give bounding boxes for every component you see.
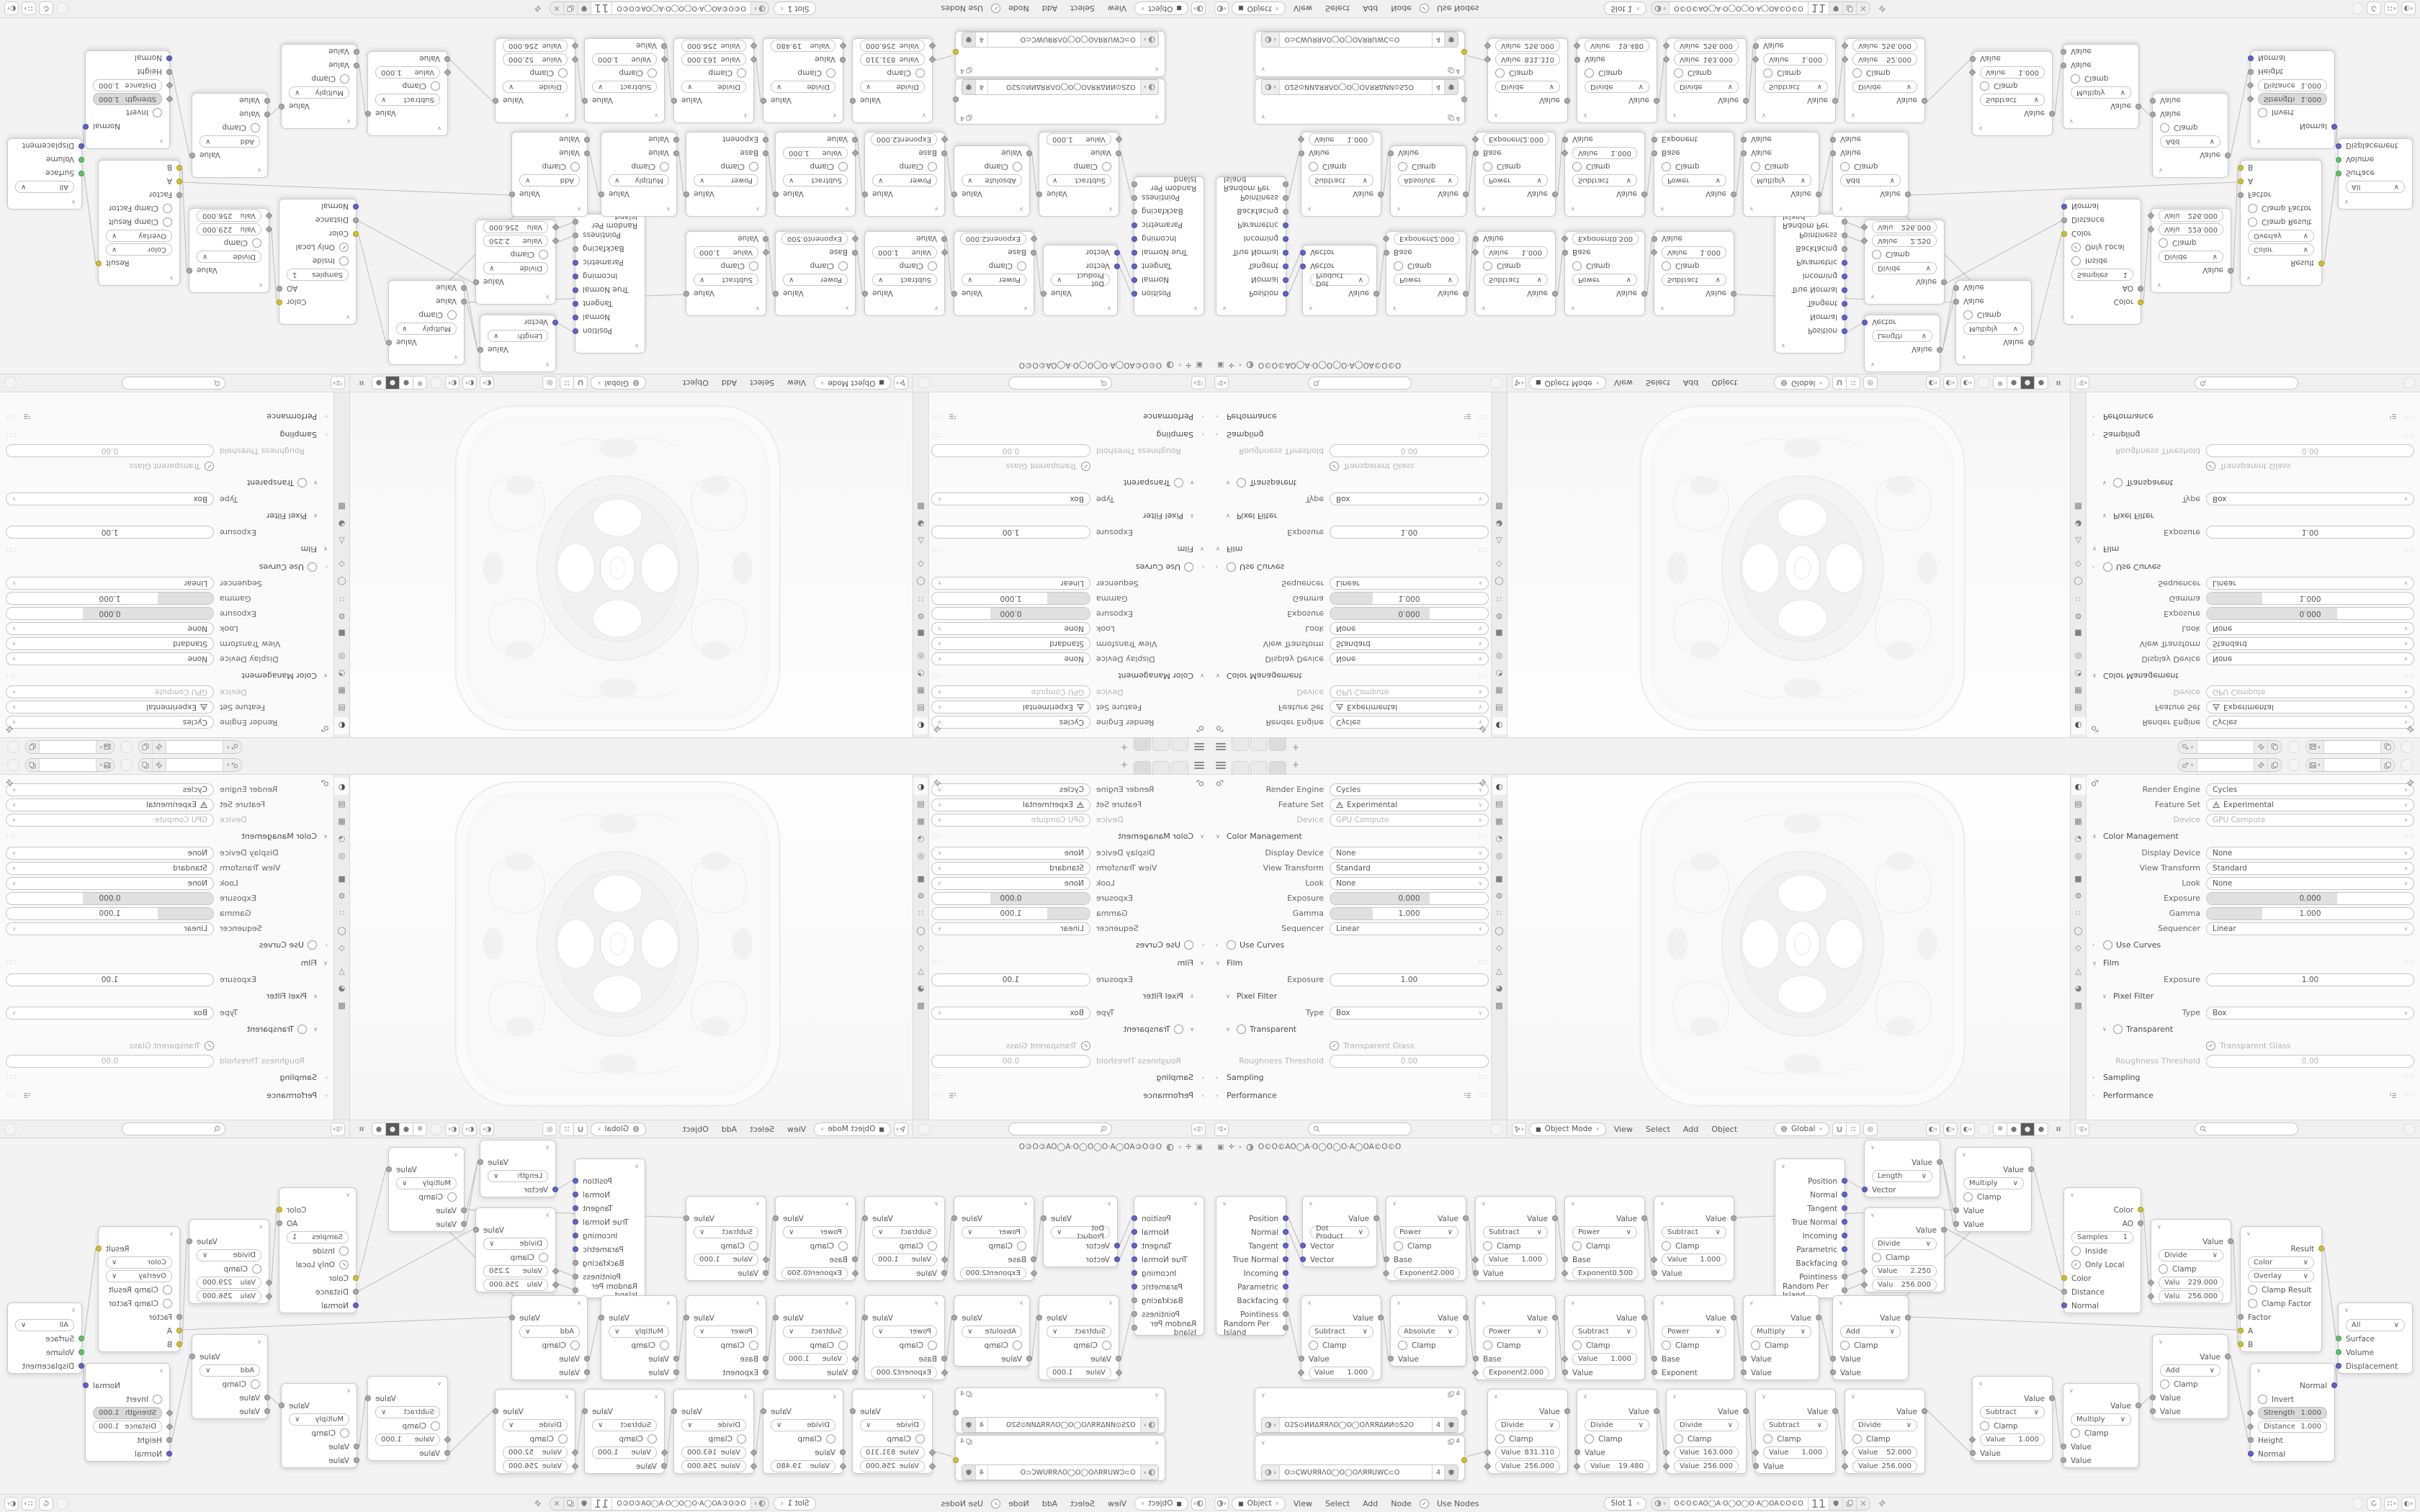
- section-sampling[interactable]: ›Sampling∷∷: [931, 426, 1204, 444]
- value-field[interactable]: Value1.000: [783, 147, 848, 159]
- input-socket[interactable]: [552, 320, 558, 325]
- slot-selector[interactable]: Slot 1∨: [1604, 2, 1646, 16]
- value-field[interactable]: Exponent2.000: [960, 1267, 1026, 1279]
- node-dropdown[interactable]: Subtract∨: [783, 1326, 848, 1338]
- output-socket[interactable]: [1283, 250, 1289, 256]
- checkbox-clamp[interactable]: [1751, 162, 1760, 171]
- node-math-subtract-1[interactable]: ∨ValueSubtract∨ClampValue1.000Value: [864, 1196, 945, 1281]
- value-field[interactable]: Value831.310: [860, 53, 925, 66]
- tab-modifiers[interactable]: ⚙: [335, 608, 349, 625]
- output-socket[interactable]: [1641, 1315, 1647, 1320]
- dropdown-box[interactable]: Box∨: [931, 493, 1090, 506]
- output-socket[interactable]: [1283, 1215, 1289, 1221]
- node-mix-color[interactable]: ∨ResultColor∨Overlay∨Clamp ResultClamp F…: [98, 1226, 180, 1352]
- node-header[interactable]: ∨: [776, 300, 855, 315]
- collapse-icon[interactable]: ∨: [1660, 305, 1664, 312]
- value-field[interactable]: Samples1: [2071, 269, 2133, 281]
- output-socket[interactable]: [1041, 291, 1047, 297]
- collapse-icon[interactable]: ∨: [2344, 1307, 2349, 1313]
- value-field[interactable]: Value163.000: [681, 53, 746, 66]
- material-users-count[interactable]: 11: [1808, 3, 1829, 15]
- tab-constraints[interactable]: ◇: [335, 939, 349, 956]
- node-geometry-1[interactable]: ∨PositionNormalTangentTrue NormalIncomin…: [1134, 176, 1204, 316]
- dropdown-none[interactable]: None∨: [1330, 877, 1489, 890]
- collapse-icon[interactable]: ∨: [1660, 1300, 1664, 1306]
- node-dropdown[interactable]: Multiply∨: [396, 1177, 457, 1189]
- output-socket[interactable]: [1283, 1325, 1289, 1331]
- node-dropdown[interactable]: Subtract∨: [1309, 1326, 1373, 1338]
- output-socket[interactable]: [1283, 195, 1289, 201]
- input-socket[interactable]: [1970, 56, 1976, 62]
- output-socket[interactable]: [1283, 1256, 1289, 1262]
- viewport-gizmo-button[interactable]: ◐∨: [480, 1122, 494, 1136]
- number-field-exposure[interactable]: 1.00: [2206, 526, 2414, 539]
- collapse-icon[interactable]: ∨: [2157, 1223, 2161, 1230]
- node-math-dot-product[interactable]: ∨ValueDot Product∨VectorVector: [1302, 245, 1377, 316]
- tab-material[interactable]: ◕: [2071, 979, 2086, 996]
- input-socket[interactable]: [2061, 1275, 2067, 1281]
- tab-material[interactable]: ◕: [335, 516, 349, 533]
- checkbox-transparent-glass[interactable]: [205, 1041, 214, 1050]
- viewport-xray-button[interactable]: ◐∨: [1960, 377, 1975, 390]
- node-dropdown[interactable]: Subtract∨: [1572, 1326, 1637, 1338]
- output-socket[interactable]: [1937, 347, 1942, 353]
- collapse-icon[interactable]: ∨: [257, 167, 261, 174]
- node-header[interactable]: ∨: [853, 1390, 932, 1405]
- output-socket[interactable]: [573, 274, 578, 279]
- node-header[interactable]: ∨: [1667, 1390, 1746, 1405]
- app-menu-icon[interactable]: [1216, 744, 1226, 751]
- node-math-absolute[interactable]: ∨ValueAbsolute∨ClampValue: [954, 1295, 1030, 1367]
- output-socket[interactable]: [1131, 1256, 1137, 1262]
- input-socket[interactable]: [1830, 150, 1836, 156]
- output-socket[interactable]: [1922, 98, 1927, 104]
- section-use-curves[interactable]: ›Use Curves: [1216, 936, 1489, 954]
- value-field[interactable]: Value1.000: [1980, 66, 2045, 78]
- collapse-icon[interactable]: ∨: [934, 1200, 938, 1207]
- node-math-power-1[interactable]: ∨ValuePower∨ClampBaseExponent2.000: [954, 231, 1034, 316]
- orientation-selector[interactable]: Global∨: [591, 1122, 646, 1136]
- checkbox-clamp[interactable]: [928, 1341, 937, 1350]
- node-math-divide-52[interactable]: ∨ValueDivide∨ClampValue52.000Value256.00…: [495, 1389, 575, 1474]
- dropdown-gpu-compute[interactable]: GPU Compute∨: [1330, 814, 1489, 827]
- dropdown-cycles[interactable]: Cycles∨: [6, 716, 214, 729]
- node-dropdown[interactable]: Divide∨: [1872, 1238, 1937, 1250]
- value-field[interactable]: Value163.000: [1674, 1446, 1739, 1459]
- section-sampling[interactable]: ›Sampling∷∷: [2092, 1068, 2414, 1086]
- node-dropdown[interactable]: Power∨: [962, 1226, 1026, 1238]
- input-socket[interactable]: [1116, 1356, 1121, 1362]
- tab-scene[interactable]: ◔: [2071, 829, 2086, 847]
- node-header[interactable]: ∨: [1865, 1140, 1940, 1156]
- use-nodes-checkbox[interactable]: [991, 1499, 1000, 1508]
- input-socket[interactable]: [852, 1369, 858, 1375]
- node-editor-canvas[interactable]: ∨PositionNormalTangentTrue NormalIncomin…: [1210, 1138, 2420, 1494]
- node-ambient-occlusion[interactable]: ∨ColorAOSamples1InsideOnly LocalColorDis…: [279, 199, 357, 325]
- input-socket[interactable]: [2248, 1437, 2254, 1443]
- input-socket[interactable]: [1026, 1356, 1032, 1362]
- collapse-icon[interactable]: ∨: [1155, 1439, 1159, 1446]
- node-header[interactable]: ∨: [585, 107, 664, 122]
- section-sampling[interactable]: ›Sampling∷∷: [1216, 426, 1489, 444]
- tab-physics[interactable]: ◯: [914, 573, 928, 590]
- viewport-overlay-button[interactable]: ◐∨: [462, 377, 477, 390]
- node-math-power-2[interactable]: ∨ValuePower∨ClampBaseExponent0.500: [775, 1196, 856, 1281]
- collapse-icon[interactable]: ∨: [934, 1300, 938, 1306]
- node-header[interactable]: ∨: [8, 194, 81, 209]
- dropdown-box[interactable]: Box∨: [2206, 1007, 2414, 1020]
- properties-search-input[interactable]: [1308, 377, 1412, 390]
- node-math-power-3[interactable]: ∨ValuePower∨ClampBaseExponent2.000: [864, 132, 945, 217]
- node-math-divide-2250[interactable]: ∨ValueDivide∨ClampValue2.250Valu256.000: [475, 1207, 556, 1292]
- node-menu-view[interactable]: View: [1289, 1499, 1317, 1508]
- datablock-field[interactable]: ∨O⊃CWUЯЯΛO◯O◯OΛЯЯUWC⊂O4: [1261, 32, 1458, 48]
- section-toggle[interactable]: [297, 478, 307, 487]
- pause-button[interactable]: [354, 1122, 369, 1136]
- output-socket[interactable]: [1816, 192, 1821, 197]
- input-socket[interactable]: [1741, 137, 1747, 143]
- collapse-icon[interactable]: ∨: [833, 112, 837, 119]
- fake-user-button[interactable]: [962, 32, 976, 47]
- input-socket[interactable]: [941, 1356, 947, 1362]
- node-image-datablock-2[interactable]: ∨4∨O⊃CWUЯЯΛO◯O◯OΛЯЯUWC⊂O4: [955, 1435, 1165, 1481]
- tab-constraints[interactable]: ◇: [335, 556, 349, 573]
- tab-output[interactable]: ▤: [335, 795, 349, 812]
- node-header[interactable]: ∨: [1667, 107, 1746, 122]
- tab-output[interactable]: ▤: [335, 700, 349, 717]
- section-film[interactable]: ∨Film∷∷: [1216, 954, 1489, 972]
- collapse-icon[interactable]: ∨: [1749, 1300, 1754, 1306]
- collapse-icon[interactable]: ∨: [454, 354, 458, 361]
- slider-gamma[interactable]: 1.000: [2206, 907, 2414, 920]
- node-header[interactable]: ∨: [282, 1384, 357, 1399]
- collapse-icon[interactable]: ∨: [1962, 354, 1966, 361]
- workspace-tab-1[interactable]: [1232, 761, 1249, 774]
- node-ambient-occlusion[interactable]: ∨ColorAOSamples1InsideOnly LocalColorDis…: [2063, 1187, 2141, 1313]
- input-socket[interactable]: [166, 55, 172, 61]
- node-header[interactable]: ∨: [674, 1390, 753, 1405]
- node-dropdown[interactable]: Subtract∨: [1572, 174, 1637, 186]
- view-layer-new-button[interactable]: [26, 759, 40, 771]
- section-toggle[interactable]: [2103, 562, 2112, 572]
- checkbox-clamp[interactable]: [1394, 261, 1403, 271]
- section-transparent[interactable]: ∨Transparent: [2092, 474, 2414, 492]
- tab-scene[interactable]: ◔: [1492, 665, 1507, 683]
- tab-output[interactable]: ▤: [2071, 700, 2086, 717]
- input-socket[interactable]: [461, 285, 467, 291]
- output-socket[interactable]: [96, 261, 102, 266]
- slider-exposure[interactable]: 0.000: [1330, 892, 1489, 905]
- tab-object-data[interactable]: △: [335, 962, 349, 979]
- checkbox-clamp[interactable]: [826, 68, 835, 78]
- dropdown-linear[interactable]: Linear∨: [2206, 577, 2414, 590]
- node-math-multiply-2[interactable]: ∨ValueMultiply∨ClampValueValue: [601, 132, 677, 217]
- dropdown-none[interactable]: None∨: [1330, 623, 1489, 636]
- tab-particles[interactable]: ∷: [1492, 590, 1507, 608]
- material-pin-button[interactable]: [531, 1497, 545, 1511]
- node-header[interactable]: ∨: [1577, 107, 1657, 122]
- section-transparent[interactable]: ∨Transparent: [1216, 474, 1489, 492]
- value-field[interactable]: Value1.000: [592, 53, 657, 66]
- output-socket[interactable]: [1131, 209, 1137, 215]
- workspace-tab-2[interactable]: [1152, 738, 1170, 751]
- value-field[interactable]: Valu256.000: [483, 221, 548, 233]
- view-layer-new-button[interactable]: [26, 741, 40, 753]
- output-socket[interactable]: [277, 1207, 282, 1212]
- node-menu-select[interactable]: Select: [1065, 1499, 1100, 1508]
- properties-nav-button[interactable]: [2403, 1123, 2416, 1135]
- checkbox-clamp[interactable]: [1840, 162, 1850, 171]
- dropdown-standard[interactable]: Standard∨: [931, 862, 1090, 875]
- node-math-divide-52[interactable]: ∨ValueDivide∨ClampValue52.000Value256.00…: [1845, 1389, 1925, 1474]
- node-refresh-button[interactable]: [2367, 1497, 2381, 1511]
- viewport-menu-view[interactable]: View: [1609, 1125, 1638, 1134]
- input-socket[interactable]: [353, 204, 359, 210]
- node-math-absolute[interactable]: ∨ValueAbsolute∨ClampValue: [1390, 1295, 1466, 1367]
- node-dropdown[interactable]: Length∨: [1872, 330, 1932, 342]
- value-field[interactable]: Value19.480: [1585, 40, 1649, 52]
- tab-modifiers[interactable]: ⚙: [914, 608, 928, 625]
- collapse-icon[interactable]: ∨: [1839, 1300, 1843, 1306]
- input-socket[interactable]: [1753, 43, 1759, 49]
- add-workspace-button[interactable]: +: [1290, 742, 1301, 753]
- value-field[interactable]: Value1.000: [1483, 1254, 1548, 1266]
- checkbox-clamp[interactable]: [1572, 261, 1582, 271]
- collapse-icon[interactable]: ∨: [259, 282, 263, 289]
- collapse-icon[interactable]: ∨: [1571, 305, 1575, 312]
- slider-exposure[interactable]: 0.000: [2206, 892, 2414, 905]
- viewport-gizmo-button[interactable]: ◐∨: [1926, 377, 1940, 390]
- node-header[interactable]: ∨: [686, 1296, 766, 1311]
- node-image-datablock-1[interactable]: ∨4∨O2S⊙ИͶΔЯЯΛO◯O◯OΛЯЯΔͶИ⊙S2O4: [1255, 78, 1465, 125]
- input-socket[interactable]: [1562, 137, 1568, 143]
- node-dropdown[interactable]: Divide∨: [503, 81, 568, 93]
- value-field[interactable]: Valu256.000: [2159, 210, 2223, 222]
- node-snap-button[interactable]: ∨: [22, 2, 36, 16]
- slider-gamma[interactable]: 1.000: [2206, 593, 2414, 606]
- input-socket[interactable]: [1862, 1187, 1868, 1192]
- workspace-tab-3[interactable]: [1134, 738, 1151, 751]
- tab-object[interactable]: ■: [914, 625, 928, 642]
- dropdown-experimental[interactable]: Experimental∨: [6, 798, 214, 811]
- node-math-subtract-1[interactable]: ∨ValueSubtract∨ClampValue1.000Value: [864, 231, 945, 316]
- input-socket[interactable]: [353, 1275, 359, 1281]
- section-sampling[interactable]: ›Sampling∷∷: [2092, 426, 2414, 444]
- value-field[interactable]: Valu229.000: [2159, 223, 2223, 235]
- number-field-exposure[interactable]: 1.00: [931, 526, 1090, 539]
- value-field[interactable]: Value1.000: [1572, 1353, 1637, 1365]
- tab-object[interactable]: ■: [1492, 625, 1507, 642]
- checkbox-clamp[interactable]: [1102, 1341, 1111, 1350]
- output-socket[interactable]: [1731, 192, 1736, 197]
- node-dropdown[interactable]: Divide∨: [860, 81, 925, 93]
- node-material-output[interactable]: ∨All∨SurfaceVolumeDisplacement: [7, 1302, 82, 1374]
- node-bump[interactable]: ∨NormalInvertStrength1.000Distance1.000H…: [85, 50, 170, 149]
- section-pixel-filter[interactable]: ∨Pixel Filter: [6, 987, 328, 1005]
- number-field-exposure[interactable]: 1.00: [1330, 526, 1489, 539]
- dropdown-none[interactable]: None∨: [931, 877, 1090, 890]
- output-socket[interactable]: [1463, 1315, 1469, 1320]
- section-toggle[interactable]: [1237, 1025, 1246, 1034]
- input-socket[interactable]: [941, 1270, 947, 1276]
- input-socket[interactable]: [79, 1363, 84, 1369]
- tab-physics[interactable]: ◯: [335, 573, 349, 590]
- input-socket[interactable]: [2150, 98, 2156, 104]
- dropdown-cycles[interactable]: Cycles∨: [931, 783, 1090, 796]
- section-use-curves[interactable]: ›Use Curves: [6, 936, 328, 954]
- output-socket[interactable]: [1564, 98, 1570, 104]
- checkbox-clamp[interactable]: [737, 1434, 746, 1444]
- node-math-add-1[interactable]: ∨ValueAdd∨ClampValueValue: [511, 132, 588, 217]
- number-field-roughness-threshold[interactable]: 0.00: [1330, 445, 1489, 458]
- output-socket[interactable]: [1283, 236, 1289, 242]
- value-field[interactable]: Value1.000: [872, 1254, 937, 1266]
- output-socket[interactable]: [1654, 1408, 1659, 1414]
- node-header[interactable]: ∨: [2153, 162, 2228, 177]
- section-use-curves[interactable]: ›Use Curves: [2092, 558, 2414, 576]
- checkbox-clamp[interactable]: [251, 123, 260, 132]
- viewport-editor-type-button[interactable]: ∨: [1512, 377, 1526, 390]
- tab-view-layer[interactable]: ▦: [335, 683, 349, 700]
- input-socket[interactable]: [264, 98, 270, 104]
- node-header[interactable]: ∨: [1488, 107, 1567, 122]
- tab-particles[interactable]: ∷: [335, 590, 349, 608]
- node-header[interactable]: ∨: [1744, 201, 1819, 216]
- node-math-dot-product[interactable]: ∨ValueDot Product∨VectorVector: [1043, 245, 1118, 316]
- node-math-subtract-5[interactable]: ∨ValueSubtract∨ClampValue1.000Value: [1755, 38, 1836, 123]
- output-socket[interactable]: [850, 1408, 856, 1414]
- section-transparent[interactable]: ∨Transparent: [931, 1020, 1204, 1038]
- viewport-overlay-button[interactable]: ◐∨: [1943, 1122, 1958, 1136]
- node-dropdown[interactable]: Subtract∨: [1483, 274, 1548, 286]
- node-header[interactable]: ∨: [1956, 1148, 2031, 1163]
- node-header[interactable]: ∨: [476, 1208, 555, 1223]
- input-socket[interactable]: [353, 231, 359, 237]
- tab-physics[interactable]: ◯: [2071, 922, 2086, 939]
- value-field[interactable]: Value256.000: [860, 1460, 925, 1472]
- input-socket[interactable]: [79, 143, 84, 149]
- material-unlink-button[interactable]: [1856, 1498, 1870, 1510]
- node-dropdown[interactable]: Divide∨: [1852, 1419, 1917, 1431]
- checkbox-transparent-glass[interactable]: [1081, 462, 1090, 471]
- node-header[interactable]: ∨: [865, 1296, 944, 1311]
- collapse-icon[interactable]: ∨: [934, 206, 938, 212]
- node-menu-add[interactable]: Add: [1037, 4, 1062, 14]
- collapse-icon[interactable]: ∨: [565, 1393, 569, 1400]
- input-socket[interactable]: [2238, 1314, 2244, 1320]
- node-header[interactable]: ∨: [1845, 1390, 1924, 1405]
- section-sampling[interactable]: ›Sampling∷∷: [931, 1068, 1204, 1086]
- material-datablock[interactable]: ∨O©O©AO◯A·O◯O◯O·A◯OA©O©O11: [550, 1497, 769, 1511]
- collapse-icon[interactable]: ∨: [635, 1163, 639, 1169]
- tab-modifiers[interactable]: ⚙: [2071, 887, 2086, 904]
- view-layer-name-input[interactable]: [2324, 741, 2380, 753]
- input-socket[interactable]: [176, 179, 182, 184]
- value-field[interactable]: Value19.480: [771, 40, 835, 52]
- section-use-curves[interactable]: ›Use Curves: [6, 558, 328, 576]
- properties-search-input[interactable]: [122, 377, 225, 390]
- viewport-editor-type-button[interactable]: ∨: [1512, 1122, 1526, 1136]
- scene-pin-button[interactable]: [153, 759, 166, 771]
- value-field[interactable]: Valu229.000: [2159, 1277, 2223, 1289]
- node-header[interactable]: ∨: [954, 1197, 1034, 1212]
- node-header[interactable]: ∨: [1654, 1197, 1734, 1212]
- tab-world[interactable]: ◎: [914, 648, 928, 665]
- node-math-divide-229[interactable]: ∨ValueDivide∨ClampValu229.000Valu256.000: [2151, 1219, 2231, 1304]
- collapse-icon[interactable]: ∨: [169, 1230, 174, 1237]
- tab-view-layer[interactable]: ▦: [914, 683, 928, 700]
- node-ghost-button[interactable]: [2352, 3, 2364, 15]
- scene-selector[interactable]: ∨: [2178, 758, 2281, 772]
- checkbox-clamp[interactable]: [928, 261, 937, 271]
- checkbox-clamp[interactable]: [1963, 310, 1973, 320]
- checkbox-clamp[interactable]: [1017, 1241, 1026, 1251]
- collapse-icon[interactable]: ∨: [1482, 206, 1486, 212]
- output-socket[interactable]: [1373, 291, 1379, 297]
- checkbox-only-local[interactable]: [339, 243, 349, 252]
- output-socket[interactable]: [1842, 315, 1847, 320]
- collapse-icon[interactable]: ∨: [1155, 66, 1159, 73]
- tab-world[interactable]: ◎: [2071, 847, 2086, 864]
- input-socket[interactable]: [176, 1314, 182, 1320]
- tab-render[interactable]: ◐: [2071, 717, 2086, 734]
- checkbox-clamp[interactable]: [1013, 1341, 1022, 1350]
- node-header[interactable]: ∨: [763, 1390, 843, 1405]
- checkbox-clamp[interactable]: [915, 1434, 925, 1444]
- section-color-management[interactable]: ∨Color Management∷∷: [1216, 667, 1489, 685]
- shading-material-button[interactable]: ●: [2021, 377, 2035, 390]
- viewport-menu-add[interactable]: Add: [717, 379, 742, 388]
- value-field[interactable]: Value1.000: [592, 1446, 657, 1459]
- fake-user-button[interactable]: [1444, 32, 1458, 47]
- output-socket[interactable]: [1552, 291, 1558, 297]
- checkbox-invert[interactable]: [153, 1395, 162, 1404]
- material-datablock[interactable]: ∨O©O©AO◯A·O◯O◯O·A◯OA©O©O11: [1651, 1497, 1870, 1511]
- node-dropdown[interactable]: Color∨: [2248, 243, 2314, 256]
- material-users-count[interactable]: 11: [591, 1498, 612, 1510]
- node-dropdown[interactable]: Divide∨: [681, 1419, 746, 1431]
- value-field[interactable]: Valu229.000: [197, 1277, 261, 1289]
- node-dropdown[interactable]: Subtract∨: [592, 1419, 657, 1431]
- collapse-icon[interactable]: ∨: [1261, 1439, 1265, 1446]
- section-pixel-filter[interactable]: ∨Pixel Filter: [1216, 987, 1489, 1005]
- checkbox-clamp[interactable]: [1763, 1434, 1773, 1444]
- input-socket[interactable]: [1953, 1207, 1959, 1213]
- node-dropdown[interactable]: Subtract∨: [375, 1406, 440, 1418]
- slider-gamma[interactable]: 1.000: [1330, 593, 1489, 606]
- node-dropdown[interactable]: All∨: [15, 1319, 74, 1331]
- input-socket[interactable]: [353, 1289, 359, 1295]
- snap-mode-button[interactable]: [560, 377, 573, 390]
- output-socket[interactable]: [773, 1315, 779, 1320]
- tab-object-data[interactable]: △: [914, 533, 928, 550]
- node-dropdown[interactable]: Absolute∨: [1398, 174, 1458, 186]
- value-field[interactable]: Value1.000: [375, 1434, 440, 1446]
- output-socket[interactable]: [1283, 209, 1289, 215]
- node-header[interactable]: ∨: [496, 107, 575, 122]
- value-field[interactable]: Value256.000: [860, 40, 925, 52]
- app-menu-icon[interactable]: [1216, 762, 1226, 769]
- dropdown-cycles[interactable]: Cycles∨: [2206, 783, 2414, 796]
- datablock-field[interactable]: ∨O2S⊙ИͶΔЯЯΛO◯O◯OΛЯЯΔͶИ⊙S2O4: [962, 79, 1159, 95]
- shading-wireframe-button[interactable]: ⊕: [1993, 377, 2007, 390]
- orientation-selector[interactable]: Global∨: [1774, 377, 1829, 390]
- node-dropdown[interactable]: Divide∨: [483, 1238, 548, 1250]
- input-socket[interactable]: [2150, 112, 2156, 117]
- node-math-multiply-2[interactable]: ∨ValueMultiply∨ClampValueValue: [601, 1295, 677, 1380]
- node-dropdown[interactable]: Subtract∨: [592, 81, 657, 93]
- node-header[interactable]: ∨: [674, 107, 753, 122]
